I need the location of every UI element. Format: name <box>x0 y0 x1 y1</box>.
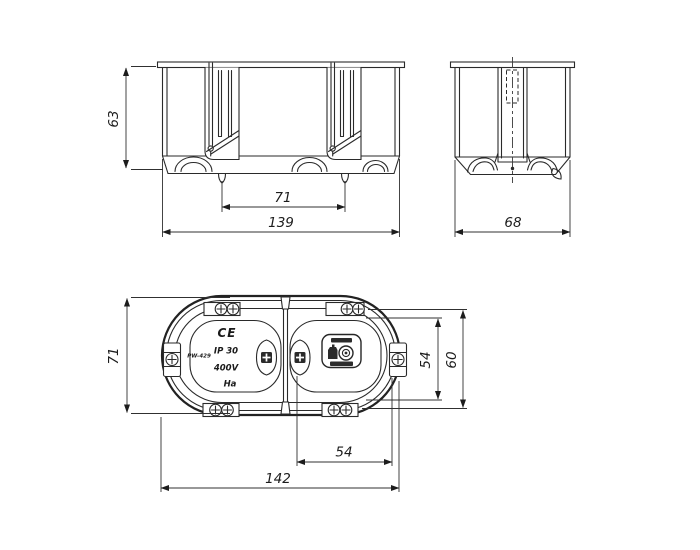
plan-view: CE IP 30 400V Ha PW-429 71 <box>106 296 467 492</box>
plan-dim-height-label: 71 <box>106 347 122 364</box>
ip-rating-label: IP 30 <box>214 347 238 357</box>
plan-divider <box>281 297 290 414</box>
side-view: 68 <box>451 57 575 237</box>
front-walls <box>163 68 400 157</box>
ce-mark-icon: CE <box>217 326 236 340</box>
badge-bottom-text-bar <box>330 362 353 367</box>
plan-dim-screw-vertical-label: 54 <box>418 351 434 368</box>
front-dim-claw-spacing: 71 <box>222 181 345 212</box>
plan-side-tab-left <box>164 343 181 377</box>
product-code-label: PW-429 <box>187 354 211 360</box>
side-dim-depth-label: 68 <box>504 215 521 231</box>
front-dim-claw-spacing-label: 71 <box>274 190 291 206</box>
plan-dim-screw-horizontal: 54 <box>297 376 392 466</box>
side-center-dot <box>511 167 514 170</box>
plan-dim-length: 142 <box>161 381 399 492</box>
material-mark-label: Ha <box>224 380 237 390</box>
front-view: 63 71 139 <box>106 62 405 237</box>
plan-side-tab-right <box>390 343 407 377</box>
boss-top-left <box>204 303 240 316</box>
plan-dim-screw-horizontal-label: 54 <box>335 445 352 461</box>
front-claw-right <box>327 63 361 160</box>
boss-bottom-left <box>203 404 239 417</box>
voltage-label: 400V <box>213 364 240 374</box>
plan-dim-length-label: 142 <box>265 471 291 487</box>
boss-bottom-right <box>322 404 358 417</box>
badge-top-text-bar <box>331 338 352 343</box>
plan-dim-outer-vertical: 60 <box>362 310 467 409</box>
front-dim-height-label: 63 <box>106 110 122 127</box>
front-rim <box>158 62 405 68</box>
technical-drawing-sheet: 63 71 139 <box>0 0 700 550</box>
plan-dim-outer-vertical-label: 60 <box>444 351 460 368</box>
front-dim-width-label: 139 <box>268 215 294 231</box>
front-bottom-band <box>163 156 400 174</box>
front-dim-height: 63 <box>106 67 163 170</box>
brand-badge <box>322 335 361 368</box>
plan-claw-screw-right <box>290 340 310 375</box>
drawing-canvas: 63 71 139 <box>0 0 700 550</box>
plan-claw-screw-left <box>257 340 277 375</box>
front-claw-left <box>205 63 239 160</box>
boss-top-right <box>326 303 364 316</box>
